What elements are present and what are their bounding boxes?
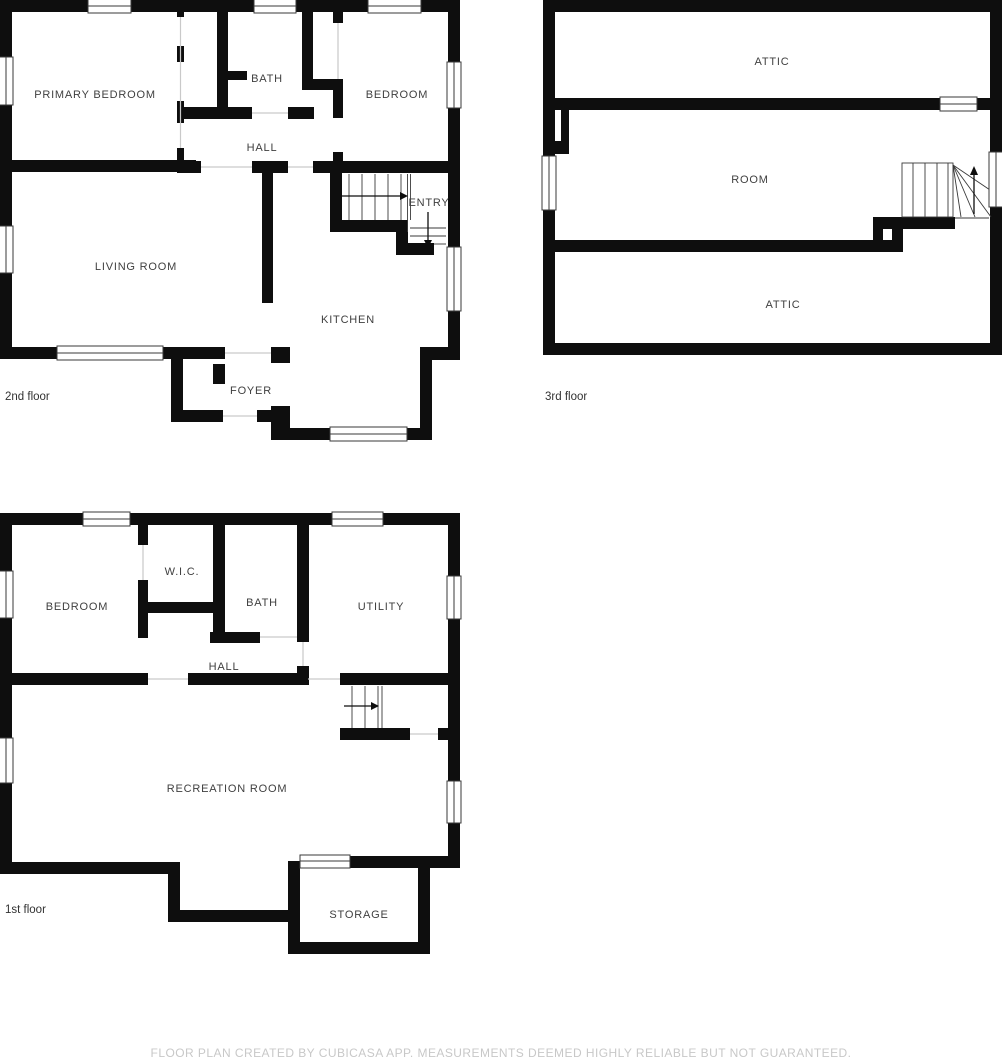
window-icon xyxy=(368,0,421,13)
walls-1st-floor xyxy=(0,513,460,954)
window-icon xyxy=(0,738,13,783)
window-icon xyxy=(447,576,461,619)
staircase-down-icon xyxy=(410,212,446,248)
floor-plan-sheet: PRIMARY BEDROOM BATH BEDROOM HALL ENTRY … xyxy=(0,0,1002,1064)
room-label-bedroom: BEDROOM xyxy=(46,601,108,613)
window-icon xyxy=(57,346,163,360)
window-icon xyxy=(254,0,296,13)
floor-plan-1st-floor-drawing xyxy=(0,505,470,970)
disclaimer-text: FLOOR PLAN CREATED BY CUBICASA APP. MEAS… xyxy=(0,1046,1002,1060)
room-label-kitchen: KITCHEN xyxy=(321,314,375,326)
stair-arrow-right-icon xyxy=(341,192,408,200)
window-icon xyxy=(940,97,977,111)
room-label-attic-top: ATTIC xyxy=(755,56,790,68)
caption-1st-floor: 1st floor xyxy=(5,904,46,916)
room-label-utility: UTILITY xyxy=(358,601,405,613)
windows-1st-floor xyxy=(0,512,461,868)
room-label-living-room: LIVING ROOM xyxy=(95,261,177,273)
windows-3rd-floor xyxy=(542,97,1002,210)
staircase-winder-icon xyxy=(902,163,993,218)
window-icon xyxy=(447,62,461,108)
staircase-up-icon xyxy=(344,686,382,728)
stair-arrow-down-icon xyxy=(424,212,432,248)
floor-plan-3rd-floor: ATTIC ROOM ATTIC xyxy=(533,0,1002,365)
window-icon xyxy=(0,57,13,105)
stair-arrow-right-icon xyxy=(344,702,379,710)
floor-plan-2nd-floor: PRIMARY BEDROOM BATH BEDROOM HALL ENTRY … xyxy=(0,0,470,455)
window-icon xyxy=(330,427,407,441)
window-icon xyxy=(0,571,13,618)
room-label-bedroom: BEDROOM xyxy=(366,89,428,101)
room-label-storage: STORAGE xyxy=(329,909,388,921)
window-icon xyxy=(83,512,130,526)
room-label-primary-bedroom: PRIMARY BEDROOM xyxy=(34,89,156,101)
room-label-room: ROOM xyxy=(731,174,768,186)
caption-3rd-floor: 3rd floor xyxy=(545,391,587,403)
caption-2nd-floor: 2nd floor xyxy=(5,391,50,403)
room-label-foyer: FOYER xyxy=(230,385,272,397)
room-label-wic: W.I.C. xyxy=(165,566,200,578)
window-icon xyxy=(88,0,131,13)
room-label-bath: BATH xyxy=(246,597,278,609)
window-icon xyxy=(332,512,383,526)
window-icon xyxy=(542,156,556,210)
walls-2nd-floor xyxy=(0,0,460,440)
floor-plan-1st-floor: BEDROOM W.I.C. BATH UTILITY HALL RECREAT… xyxy=(0,505,470,970)
room-label-recreation-room: RECREATION ROOM xyxy=(167,783,288,795)
room-label-attic-bottom: ATTIC xyxy=(766,299,801,311)
room-label-entry: ENTRY xyxy=(408,197,449,209)
room-label-hall: HALL xyxy=(247,142,278,154)
window-icon xyxy=(447,247,461,311)
room-label-bath: BATH xyxy=(251,73,283,85)
room-label-hall: HALL xyxy=(209,661,240,673)
window-icon xyxy=(300,855,350,868)
window-icon xyxy=(989,152,1002,207)
window-icon xyxy=(447,781,461,823)
window-icon xyxy=(0,226,13,273)
